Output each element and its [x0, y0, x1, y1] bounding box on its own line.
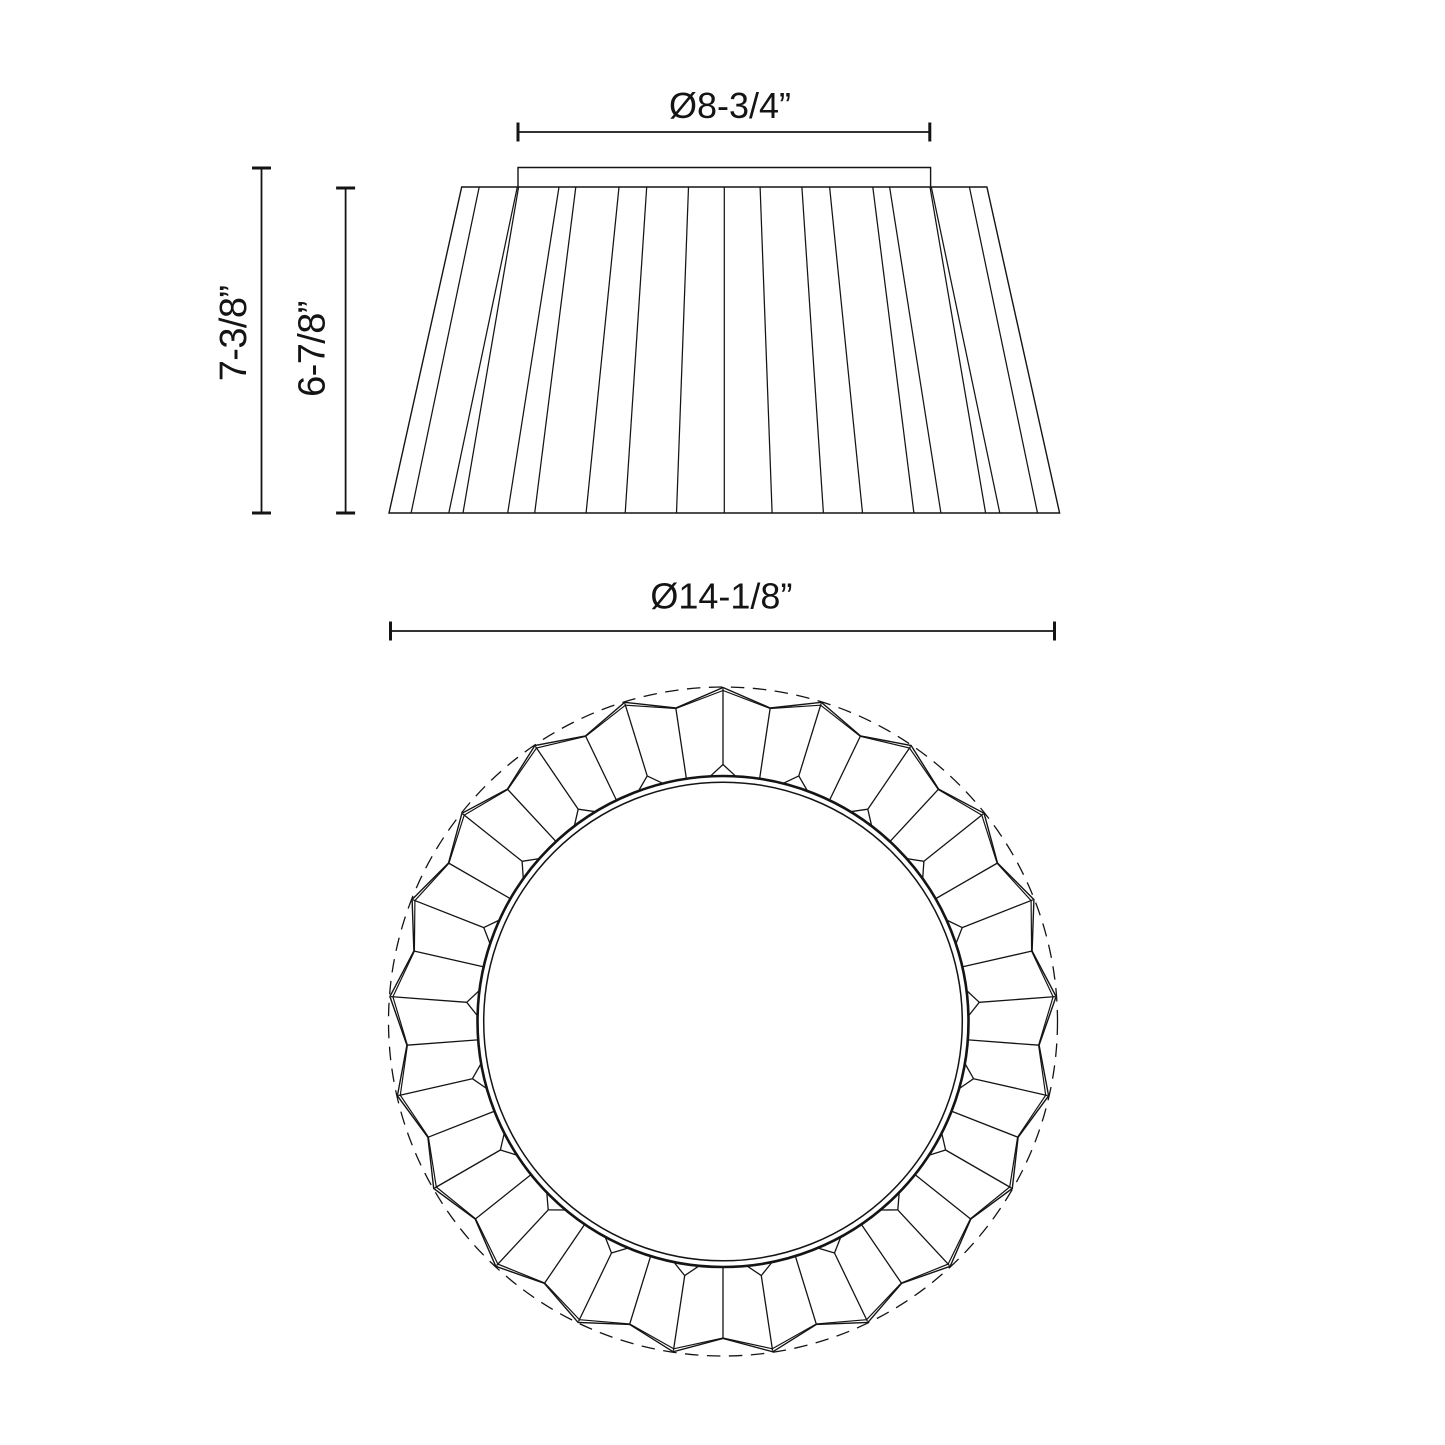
- svg-text:Ø8-3/4”: Ø8-3/4”: [669, 85, 791, 126]
- svg-text:6-7/8”: 6-7/8”: [291, 301, 333, 397]
- svg-text:Ø14-1/8”: Ø14-1/8”: [650, 576, 792, 617]
- svg-text:7-3/8”: 7-3/8”: [213, 286, 255, 382]
